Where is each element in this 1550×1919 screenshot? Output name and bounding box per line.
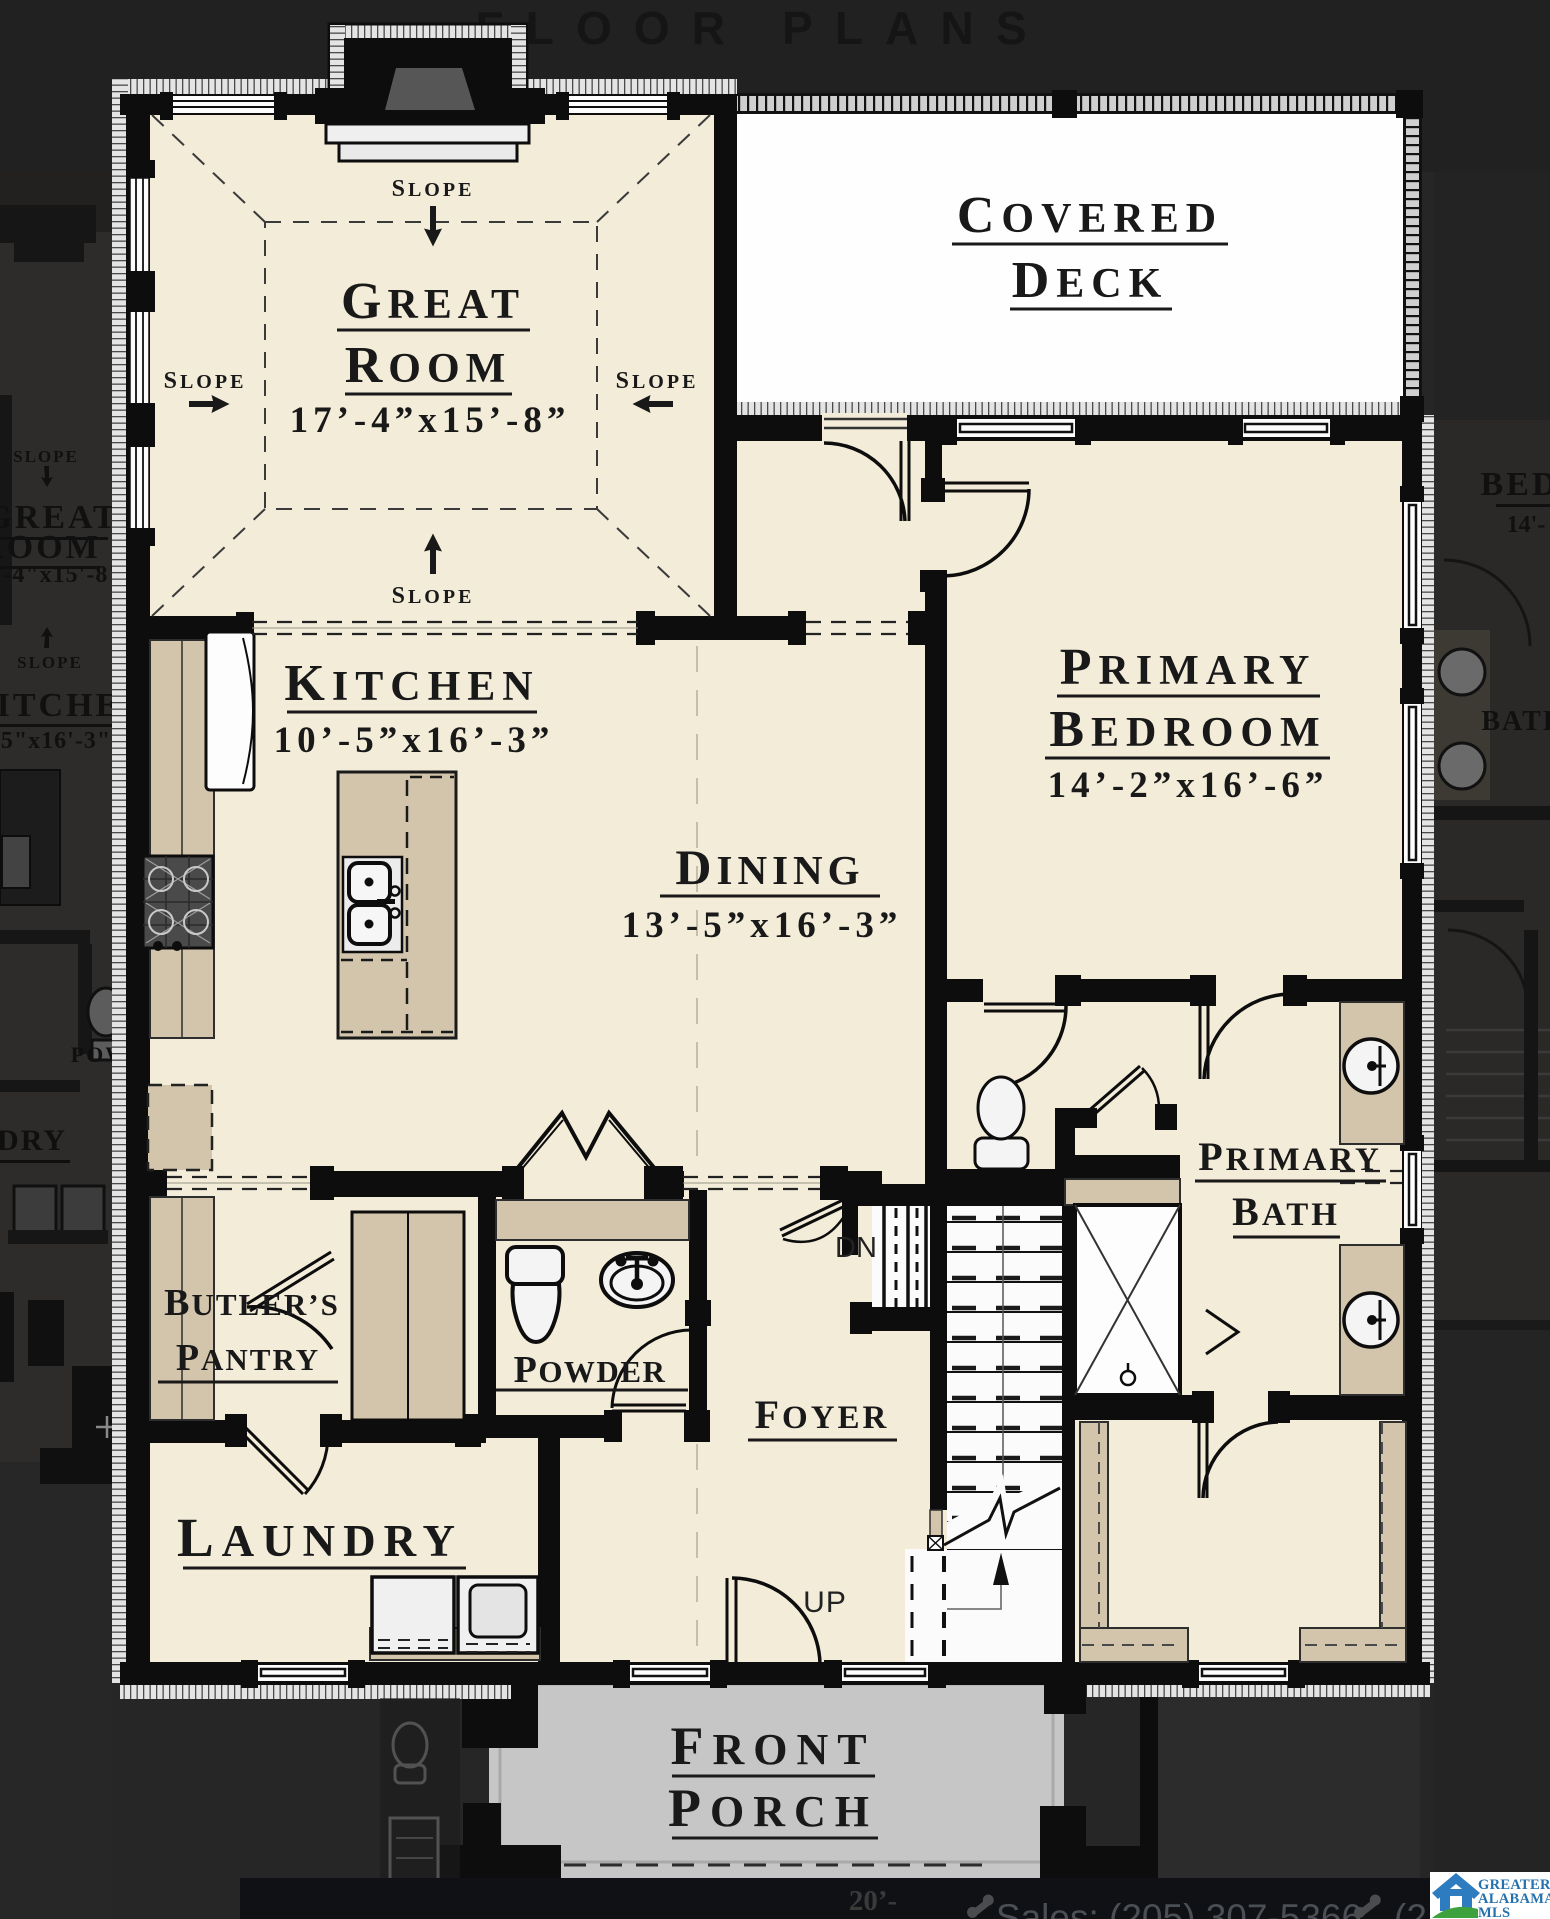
- svg-text:DINING: DINING: [675, 839, 864, 895]
- svg-text:DRY: DRY: [0, 1124, 67, 1157]
- svg-text:14’-2”x16’-6”: 14’-2”x16’-6”: [1048, 765, 1329, 806]
- svg-text:FLOOR PLANS: FLOOR PLANS: [476, 2, 1041, 54]
- svg-text:COVERED: COVERED: [957, 187, 1223, 244]
- svg-text:BED: BED: [1481, 466, 1550, 503]
- svg-text:10’-5”x16’-3”: 10’-5”x16’-3”: [274, 720, 555, 761]
- svg-text:PORCH: PORCH: [668, 1778, 878, 1838]
- svg-text:GREAT: GREAT: [341, 273, 525, 330]
- svg-text:SLOPE: SLOPE: [17, 653, 83, 672]
- svg-text:20’-: 20’-: [849, 1885, 897, 1917]
- svg-text:FRONT: FRONT: [670, 1716, 875, 1776]
- svg-text:UP: UP: [803, 1586, 847, 1619]
- svg-text:SLOPE: SLOPE: [392, 583, 475, 609]
- svg-text:ROOM: ROOM: [0, 529, 101, 566]
- svg-text:SLOPE: SLOPE: [616, 368, 699, 394]
- svg-text:POWDER: POWDER: [514, 1349, 667, 1391]
- svg-text:BEDROOM: BEDROOM: [1049, 701, 1326, 758]
- svg-text:SLOPE: SLOPE: [164, 368, 247, 394]
- svg-text:DN: DN: [835, 1232, 877, 1264]
- svg-text:PRIMARY: PRIMARY: [1060, 639, 1317, 696]
- svg-text:5"x16'-3": 5"x16'-3": [1, 728, 111, 754]
- svg-text:BUTLER’S: BUTLER’S: [164, 1282, 340, 1324]
- svg-text:SLOPE: SLOPE: [13, 447, 79, 466]
- svg-text:PANTRY: PANTRY: [176, 1337, 320, 1379]
- svg-text:14'-: 14'-: [1507, 512, 1546, 538]
- svg-text:KITCHEN: KITCHEN: [284, 655, 539, 712]
- svg-text:DECK: DECK: [1012, 252, 1169, 309]
- svg-text:LAUNDRY: LAUNDRY: [177, 1507, 463, 1568]
- svg-text:MLS: MLS: [1478, 1905, 1510, 1919]
- svg-text:BATH: BATH: [1481, 706, 1550, 737]
- svg-text:13’-5”x16’-3”: 13’-5”x16’-3”: [622, 905, 903, 946]
- svg-text:SLOPE: SLOPE: [392, 176, 475, 202]
- svg-text:(2: (2: [1394, 1897, 1427, 1919]
- svg-text:-4"x15'-8": -4"x15'-8": [3, 562, 122, 588]
- svg-text:Sales: (205) 307-5366: Sales: (205) 307-5366: [996, 1897, 1362, 1919]
- svg-text:ROOM: ROOM: [345, 337, 512, 394]
- svg-text:17’-4”x15’-8”: 17’-4”x15’-8”: [290, 400, 571, 441]
